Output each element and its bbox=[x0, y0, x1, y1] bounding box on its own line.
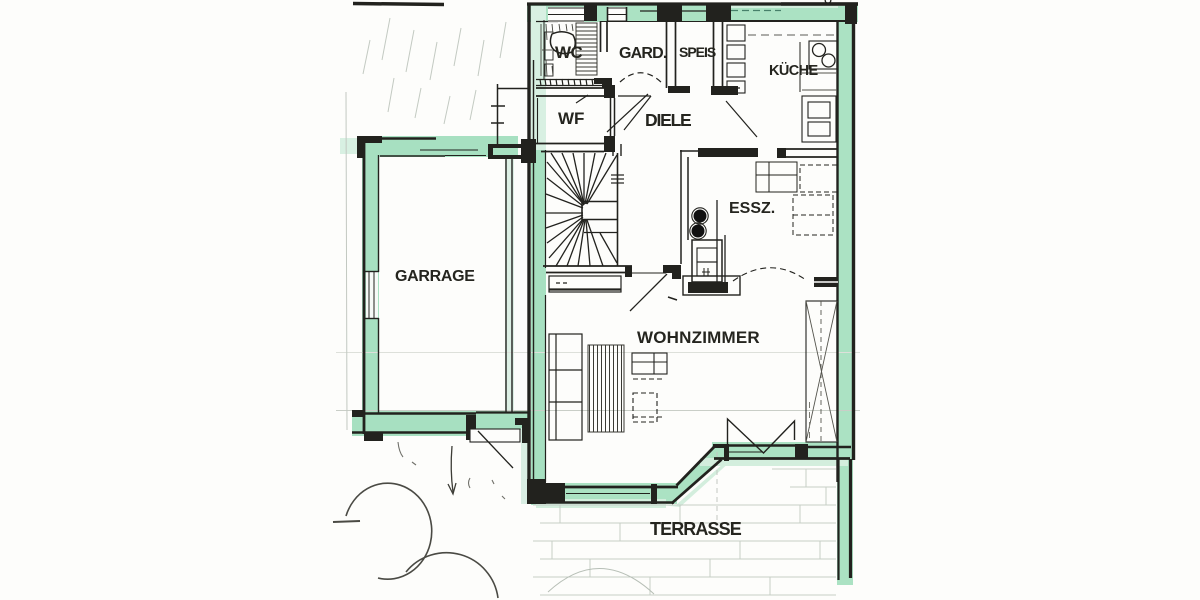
svg-text:DIELE: DIELE bbox=[645, 110, 691, 130]
svg-text:WOHNZIMMER: WOHNZIMMER bbox=[637, 328, 760, 347]
svg-text:ESSZ.: ESSZ. bbox=[729, 200, 775, 217]
svg-text:WF: WF bbox=[558, 109, 584, 128]
svg-text:WC: WC bbox=[555, 43, 583, 62]
svg-text:TERRASSE: TERRASSE bbox=[650, 519, 742, 539]
svg-text:KÜCHE: KÜCHE bbox=[769, 62, 818, 79]
svg-text:GARD.: GARD. bbox=[619, 45, 667, 62]
svg-text:GARRAGE: GARRAGE bbox=[395, 268, 475, 285]
svg-text:SPEIS: SPEIS bbox=[679, 44, 716, 60]
